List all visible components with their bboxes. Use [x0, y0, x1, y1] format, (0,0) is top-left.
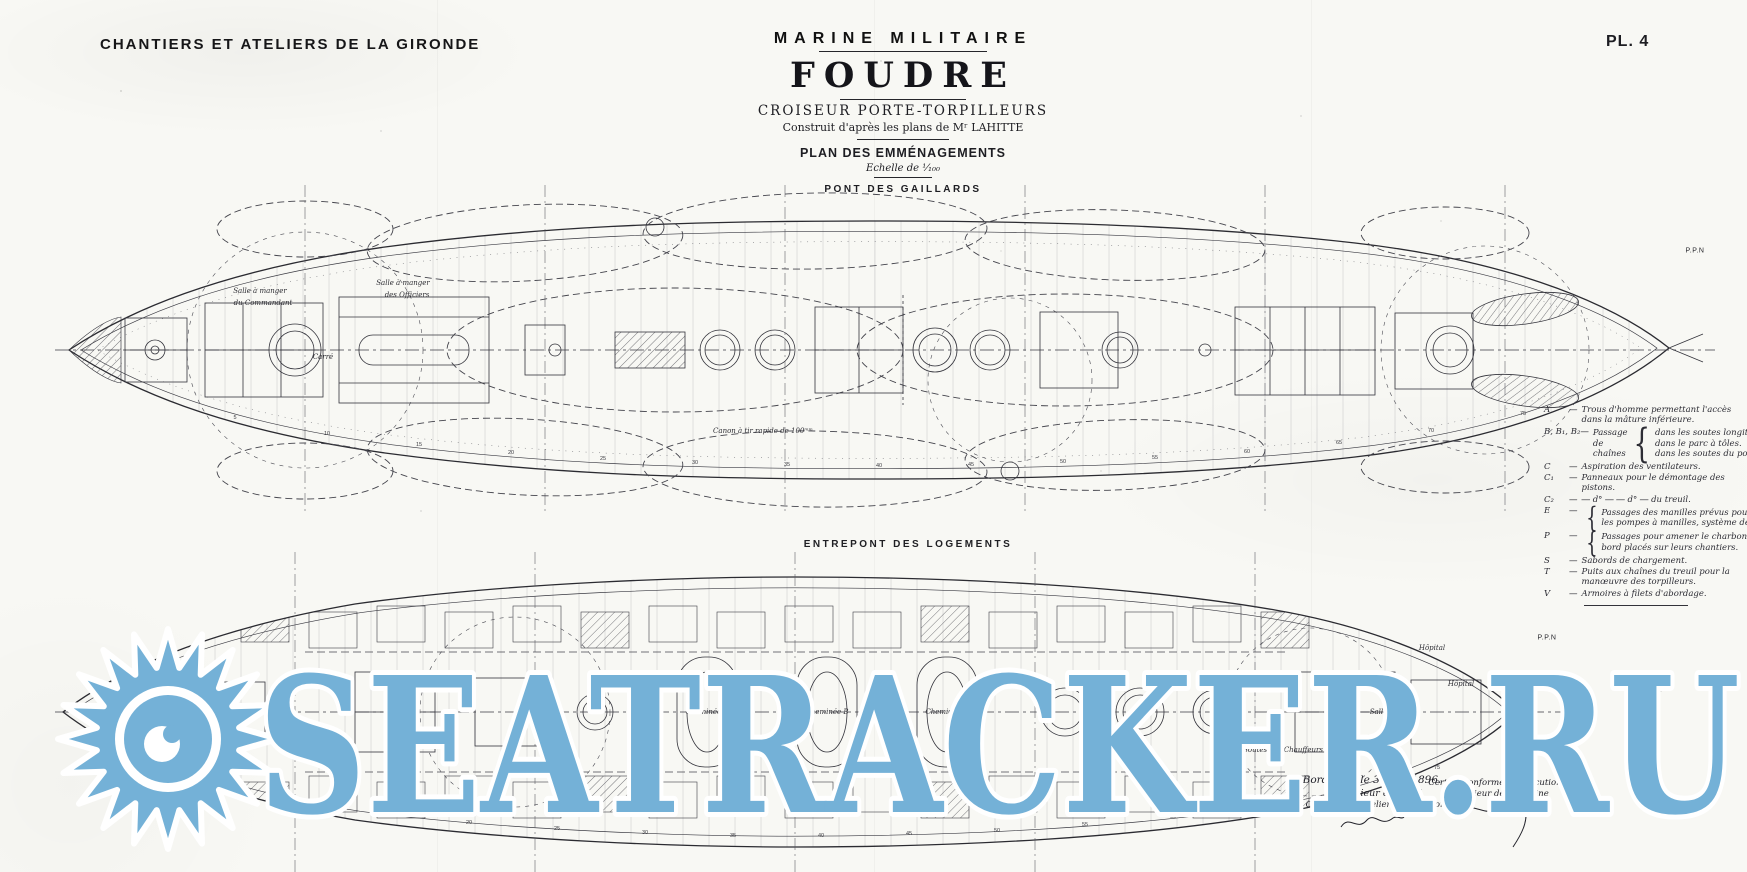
- legend-item: S—Sabords de chargement.: [1544, 556, 1746, 566]
- legend-text: Puits aux chaînes du treuil pour la manœ…: [1582, 567, 1747, 588]
- title-block: MARINE MILITAIRE FOUDRE CROISEUR PORTE-T…: [753, 30, 1053, 195]
- legend-item: B, B₁, B₂—Passage de chaînes{dans les so…: [1544, 427, 1746, 461]
- legend-item: C₂—― d° ― ― d° ― du treuil.: [1544, 495, 1746, 505]
- legend-key: E: [1544, 506, 1569, 516]
- legend-key: T: [1544, 567, 1569, 577]
- legend-sublist: dans les soutes longitudinales de la cal…: [1655, 428, 1747, 459]
- paper-specks: [120, 90, 122, 92]
- legend-key: V: [1544, 589, 1569, 599]
- legend-items: A—Trous d'homme permettant l'accès dans …: [1544, 405, 1746, 599]
- legend-key: B, B₁, B₂: [1544, 427, 1580, 437]
- legend-key: P: [1544, 531, 1569, 541]
- legend-key: S: [1544, 556, 1569, 566]
- attribution: Construit d'après les plans de Mʳ LAHITT…: [753, 121, 1053, 134]
- legend-brace: {: [1586, 531, 1598, 555]
- signature-block-right: Certifié conforme à l'exécution L'Ingéni…: [1420, 778, 1570, 853]
- divider-rule: [840, 99, 966, 100]
- legend-dash: —: [1569, 589, 1578, 599]
- legend-dash: —: [1580, 427, 1589, 437]
- legend-dash: —: [1569, 462, 1578, 472]
- signature-scribble: [1337, 812, 1407, 834]
- legend-subline: dans le parc à tôles.: [1655, 439, 1747, 449]
- upper-deck-plan: Salle à mangerdu CommandantSalle à mange…: [55, 185, 1715, 515]
- legend-key: C: [1544, 462, 1569, 472]
- legend-text: Armoires à filets d'abordage.: [1582, 589, 1707, 599]
- divider-rule: [857, 139, 949, 140]
- legend-subline: dans les soutes du pont cellulaire.: [1655, 449, 1747, 459]
- legend-dash: —: [1569, 473, 1578, 483]
- legend-subline: bord placés sur leurs chantiers.: [1601, 543, 1747, 553]
- legend-item: T—Puits aux chaînes du treuil pour la ma…: [1544, 567, 1746, 588]
- certifier-role: L'Ingénieur de la Marine: [1420, 789, 1570, 800]
- legend-text: Passage de chaînes: [1593, 428, 1628, 459]
- legend-subline: Passages pour amener le charbon spécial …: [1601, 532, 1747, 542]
- legend-dash: —: [1569, 567, 1578, 577]
- legend-subline: les pompes à manilles, système de Mompea…: [1601, 518, 1747, 528]
- legend-subline: dans les soutes longitudinales de la cal…: [1655, 428, 1747, 438]
- legend-end-rule: [1584, 605, 1688, 606]
- legend-item: C₁—Panneaux pour le démontage des piston…: [1544, 473, 1746, 494]
- legend-dash: —: [1569, 556, 1578, 566]
- ship-name: FOUDRE: [753, 55, 1053, 96]
- legend-sublist: Passages des manilles prévus pour rempla…: [1601, 508, 1747, 529]
- ship-type: CROISEUR PORTE-TORPILLEURS: [753, 103, 1053, 119]
- upper-deck-drawing: [55, 185, 1715, 515]
- legend-key: C₂: [1544, 495, 1569, 505]
- legend-text: ― d° ― ― d° ― du treuil.: [1582, 495, 1691, 505]
- plate-number: PL. 4: [1606, 33, 1649, 51]
- legend-item: P—{Passages pour amener le charbon spéci…: [1544, 531, 1746, 555]
- divider-rule: [874, 177, 932, 178]
- legend-dash: —: [1569, 405, 1578, 415]
- legend-brace: {: [1633, 427, 1650, 461]
- plan-title: PLAN DES EMMÉNAGEMENTS: [753, 146, 1053, 160]
- legend-sublist: Passages pour amener le charbon spécial …: [1601, 532, 1747, 553]
- legend-text: Panneaux pour le démontage des pistons.: [1582, 473, 1747, 494]
- legend-item: V—Armoires à filets d'abordage.: [1544, 589, 1746, 599]
- scale-note: Echelle de ¹⁄₁₀₀: [753, 163, 1053, 174]
- signature-scribble: [1455, 801, 1535, 849]
- legend: A—Trous d'homme permettant l'accès dans …: [1544, 404, 1746, 606]
- legend-dash: —: [1569, 506, 1578, 516]
- legend-key: A: [1544, 405, 1569, 415]
- legend-dash: —: [1569, 495, 1578, 505]
- divider-rule: [819, 51, 987, 52]
- shipyard-name: CHANTIERS ET ATELIERS DE LA GIRONDE: [100, 36, 480, 53]
- lower-deck-title: ENTREPONT DES LOGEMENTS: [804, 539, 1013, 550]
- certification-note: Certifié conforme à l'exécution: [1420, 778, 1570, 789]
- legend-key: C₁: [1544, 473, 1569, 483]
- legend-text: Trous d'homme permettant l'accès dans la…: [1582, 405, 1747, 426]
- legend-subline: Passages des manilles prévus pour rempla…: [1601, 508, 1747, 518]
- legend-dash: —: [1569, 531, 1578, 541]
- blueprint-sheet: CHANTIERS ET ATELIERS DE LA GIRONDE PL. …: [0, 0, 1747, 872]
- legend-item: E—{Passages des manilles prévus pour rem…: [1544, 506, 1746, 530]
- series-title: MARINE MILITAIRE: [753, 30, 1053, 48]
